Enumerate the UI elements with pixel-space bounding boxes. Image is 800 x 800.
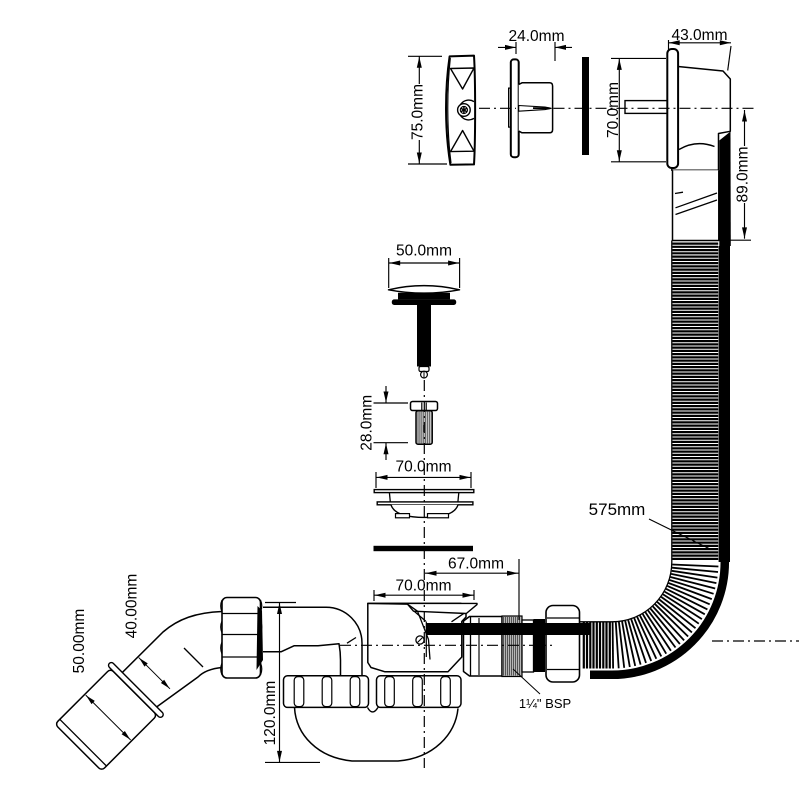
svg-text:67.0mm: 67.0mm [448,556,504,573]
svg-text:70.0mm: 70.0mm [396,459,452,476]
svg-text:43.0mm: 43.0mm [672,27,728,44]
svg-text:70.0mm: 70.0mm [605,82,622,138]
svg-text:40.00mm: 40.00mm [124,574,141,639]
svg-text:70.0mm: 70.0mm [396,578,452,595]
svg-text:1¼" BSP: 1¼" BSP [519,696,571,711]
svg-text:50.0mm: 50.0mm [396,243,452,260]
svg-text:50.00mm: 50.00mm [71,609,88,674]
svg-text:24.0mm: 24.0mm [509,28,565,45]
svg-text:89.0mm: 89.0mm [734,147,751,203]
svg-text:575mm: 575mm [589,500,646,519]
svg-text:120.0mm: 120.0mm [262,681,279,746]
svg-text:28.0mm: 28.0mm [359,395,376,451]
svg-text:75.0mm: 75.0mm [410,84,427,140]
